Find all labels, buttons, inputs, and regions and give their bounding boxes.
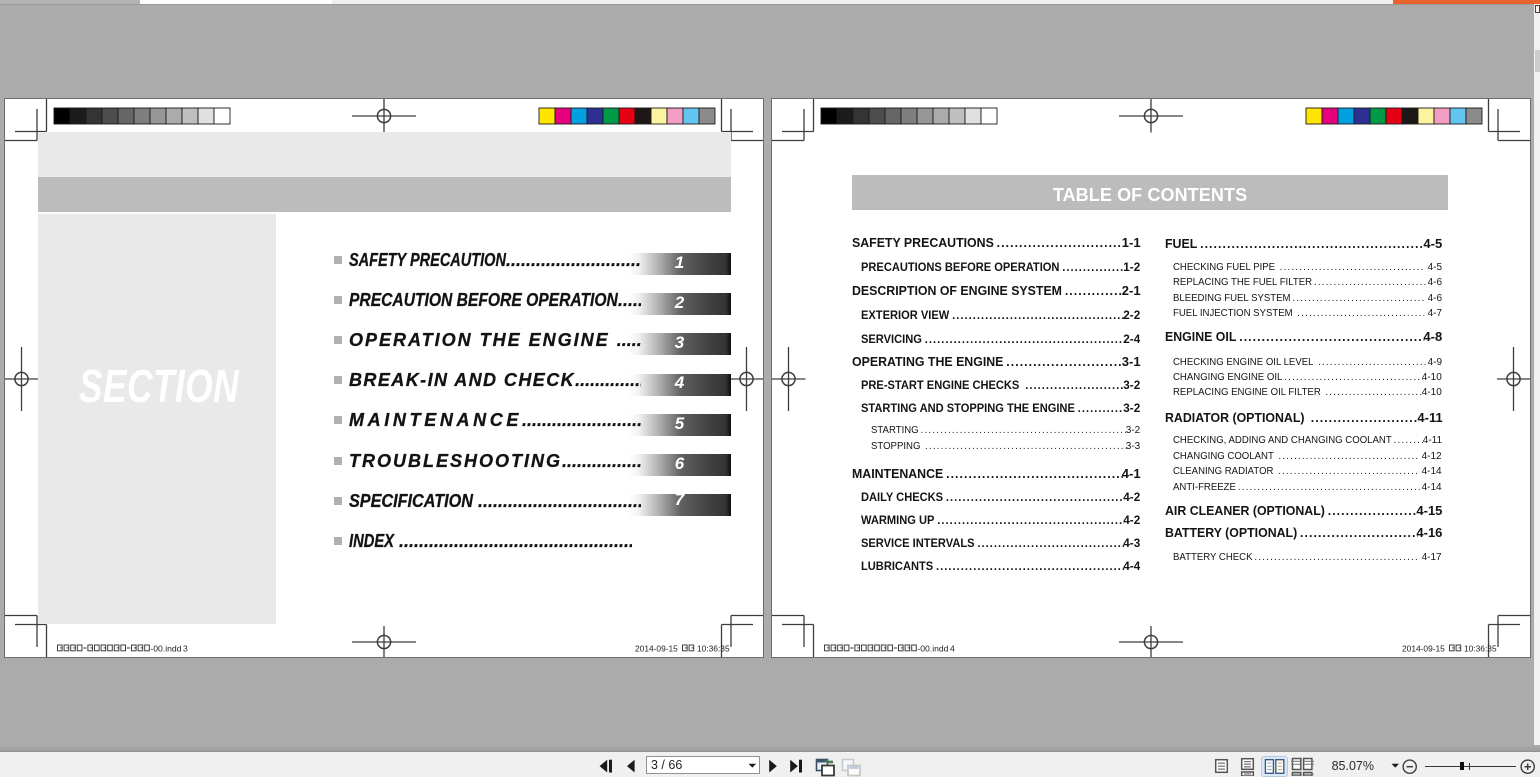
svg-text:10:36:35: 10:36:35 xyxy=(1464,643,1497,653)
svg-text:10:36:35: 10:36:35 xyxy=(697,643,730,653)
svg-text:3: 3 xyxy=(183,643,188,653)
svg-text:-00.indd: -00.indd xyxy=(150,643,181,653)
svg-text:2014-09-15: 2014-09-15 xyxy=(1402,643,1445,653)
svg-text:4: 4 xyxy=(950,643,955,653)
svg-text:-00.indd: -00.indd xyxy=(917,643,948,653)
svg-text:2014-09-15: 2014-09-15 xyxy=(635,643,678,653)
